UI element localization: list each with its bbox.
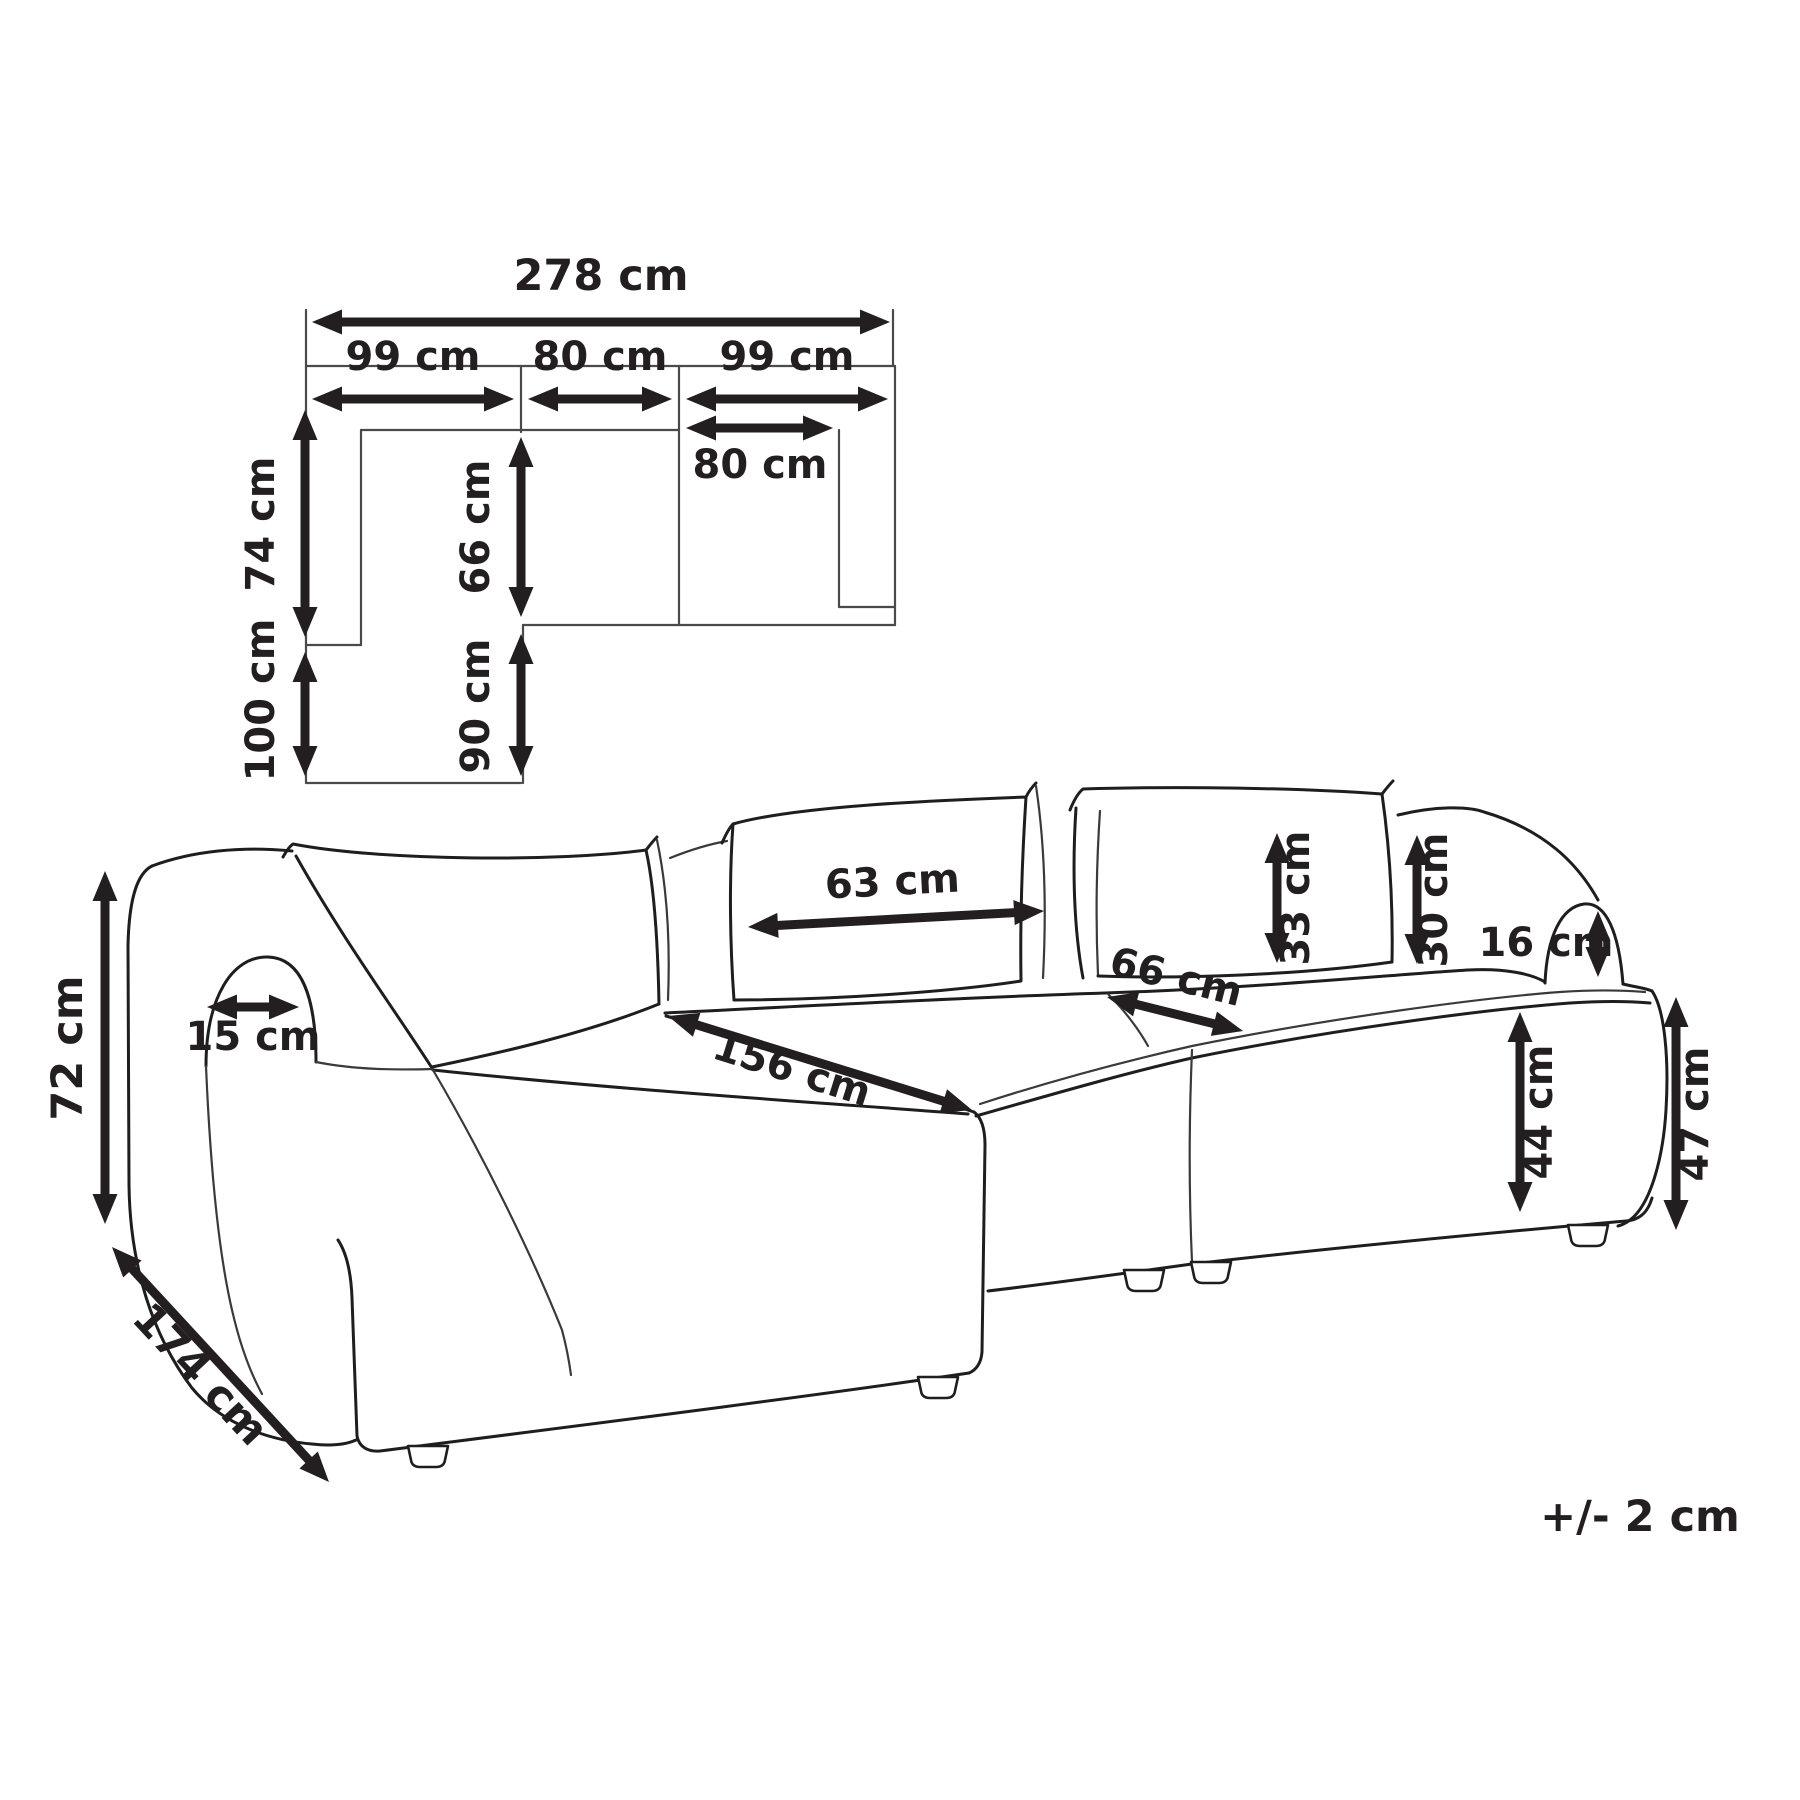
dim-label-middle-section: 80 cm (533, 334, 668, 380)
dim-arrow-chaise-inner (509, 634, 534, 776)
dim-label-side-height: 47 cm (1672, 1047, 1718, 1182)
dim-arrow-chaise-extension (293, 652, 318, 776)
dim-label-total-height: 72 cm (43, 975, 93, 1120)
dim-label-seat-depth: 66 cm (453, 460, 499, 595)
dim-arrow-inner-width (686, 416, 833, 441)
dim-arrow-back-depth (293, 410, 318, 637)
diagram-canvas: 278 cm 99 cm 80 cm 99 cm 74 cm 100 cm 66… (0, 0, 1800, 1800)
dim-label-right-section: 99 cm (720, 334, 855, 380)
sofa-view: 72 cm 174 cm 15 cm 63 cm 156 cm 66 cm 33… (43, 781, 1718, 1482)
dim-label-seat-height: 44 cm (1516, 1045, 1562, 1180)
tolerance-note: +/- 2 cm (1540, 1492, 1740, 1542)
dim-label-inner-width: 80 cm (693, 442, 828, 488)
backrest-edge-gap-1 (670, 841, 727, 858)
dim-arrow-left-section (312, 387, 514, 412)
furniture-dimension-diagram: 278 cm 99 cm 80 cm 99 cm 74 cm 100 cm 66… (0, 0, 1800, 1800)
back-cushion-left (283, 837, 669, 1067)
plan-view: 278 cm 99 cm 80 cm 99 cm 74 cm 100 cm 66… (238, 251, 895, 783)
dim-label-cushion-height: 33 cm (1273, 831, 1319, 966)
dim-label-overall-width: 278 cm (513, 251, 688, 301)
dim-label-chaise-inner: 90 cm (453, 639, 499, 774)
dim-arrow-total-height (93, 871, 118, 1224)
sofa-feet (408, 1225, 1608, 1467)
dim-arrow-middle-section (528, 387, 672, 412)
dim-arrow-seat-depth (509, 437, 534, 617)
dim-label-left-section: 99 cm (346, 334, 481, 380)
dim-arrow-right-section (686, 387, 888, 412)
plan-outline (306, 310, 895, 783)
dim-label-armrest-height: 16 cm (1479, 920, 1614, 966)
dim-label-armrest-inner: 15 cm (186, 1014, 321, 1060)
dim-label-backrest-height: 30 cm (1411, 833, 1457, 968)
dim-label-cushion-width: 63 cm (824, 856, 961, 909)
dim-label-back-depth: 74 cm (238, 457, 284, 592)
dim-arrow-overall-width (312, 310, 890, 335)
dim-label-chaise-extension: 100 cm (238, 619, 284, 782)
dim-label-total-depth: 174 cm (122, 1293, 278, 1455)
seat-lines (665, 970, 1652, 1291)
dim-arrow-cushion-width (748, 900, 1044, 938)
